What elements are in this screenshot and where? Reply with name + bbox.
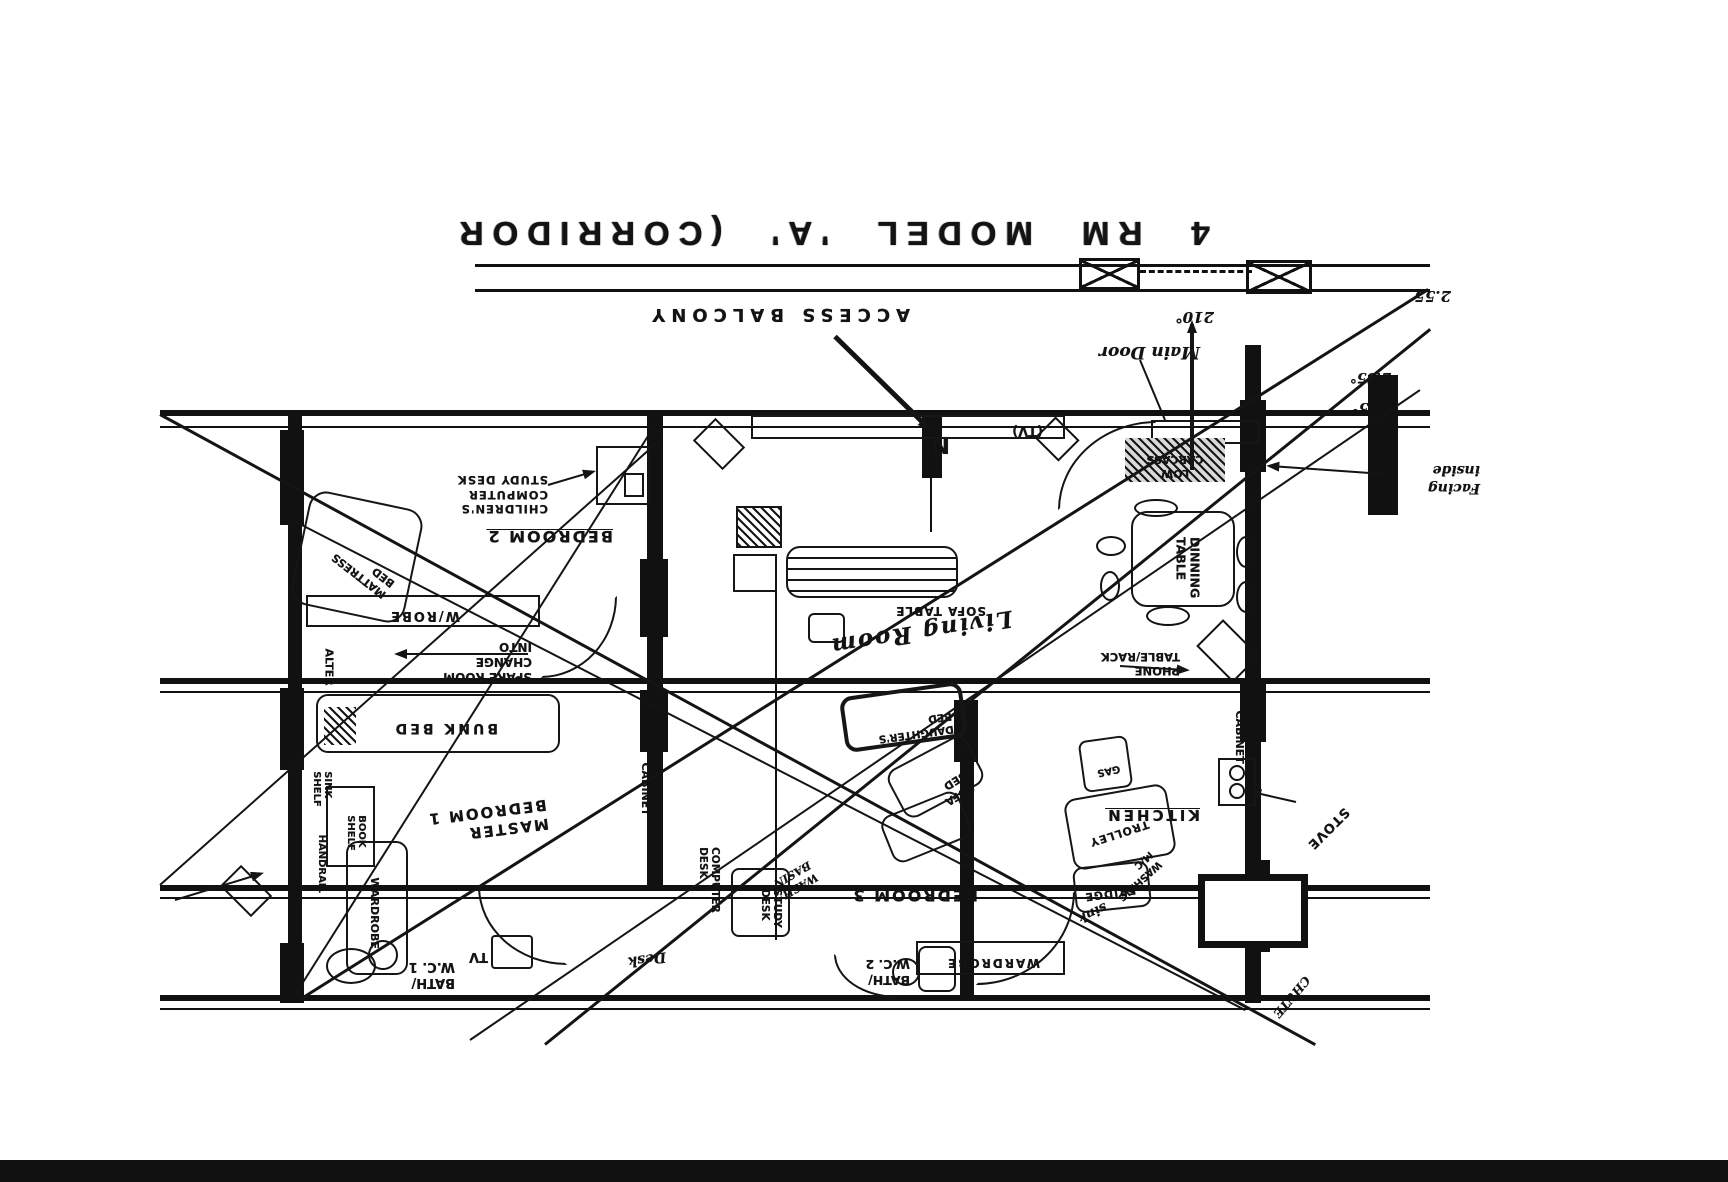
dining-chair: [1146, 606, 1190, 626]
dining-chair: [1236, 581, 1256, 613]
master-bedroom-name: MASTER BEDROOM 1: [426, 795, 549, 847]
bunk-bed-label: BUNK BED: [393, 719, 498, 737]
tv-console-label: (TV): [1012, 422, 1043, 438]
burner: [1229, 765, 1245, 781]
desk-chair: [624, 473, 644, 497]
corridor-hatch-box: [1079, 258, 1140, 290]
spare-room-arrow: [398, 653, 528, 655]
facing-inside-label: Facing inside: [1428, 461, 1480, 496]
spare-room-label: SPARE ROOM CHANGE INTO: [443, 639, 532, 684]
dining-chair: [1134, 499, 1178, 517]
floor-plan-rotated: 4 RM MODEL 'A' (CORRIDOR ACCESS BALCONY …: [0, 0, 1728, 1182]
master-wardrobe-label: WARDROBE: [367, 877, 381, 948]
bath2-fixture: [918, 946, 956, 992]
bedroom3-name: BEDROOM 3: [851, 885, 978, 905]
column: [280, 430, 304, 525]
plan-title: 4 RM MODEL 'A' (CORRIDOR: [110, 213, 1210, 254]
bedroom3-wardrobe-label: WARDROBE: [946, 955, 1040, 970]
column: [280, 943, 304, 1003]
dining-chair: [1236, 536, 1256, 568]
main-door-label: Main Door: [1099, 341, 1200, 362]
refuse-chute: [1198, 874, 1308, 948]
stove-label: STOVE: [1303, 803, 1352, 852]
dining-chair: [1096, 536, 1126, 556]
stool: [808, 613, 845, 643]
master-tv: [491, 935, 533, 969]
alter-label: ALTER: [322, 649, 336, 686]
access-balcony-label: ACCESS BALCONY: [646, 303, 910, 326]
corridor-hatch-box: [1246, 260, 1312, 294]
scanned-floor-plan: 4 RM MODEL 'A' (CORRIDOR ACCESS BALCONY …: [0, 0, 1728, 1182]
children-desk-label: CHILDREN'S COMPUTER STUDY DESK: [457, 473, 548, 516]
wrobe-label: W/ROBE: [389, 607, 460, 623]
phone-rack-label: PHONE TABLE/RACK: [1101, 649, 1180, 678]
handrail-label: HANDRAIL: [315, 835, 328, 893]
cabinet-right-label: CABINET: [1232, 710, 1246, 763]
corridor-dashed-line: [1140, 270, 1252, 273]
sink-shelf-label: SINK SHELF: [311, 771, 333, 807]
cabinet-left-label: CABINET: [638, 762, 652, 815]
children-desk-arrow: [548, 471, 593, 486]
burner: [1229, 783, 1245, 799]
stove-burners: [1218, 758, 1256, 806]
column: [1368, 375, 1398, 515]
master-tv-label: TV: [469, 948, 488, 964]
low-carcass-box: LOW CARCASS: [1125, 438, 1225, 482]
side-table: [736, 506, 782, 548]
bath2-basin: [892, 958, 920, 986]
sofa: [786, 546, 958, 598]
angle-210-arrow: [1190, 324, 1194, 470]
side-table-plain: [733, 554, 777, 592]
bath1-label: BATH/ W.C. 1: [409, 958, 455, 991]
study-desk-label: STUDY DESK: [759, 889, 782, 928]
wall-bottom: [160, 995, 1430, 1001]
dining-table-label: DINNING TABLE: [1173, 537, 1202, 598]
scan-edge-bar: [0, 1160, 1728, 1182]
column: [640, 559, 668, 637]
facing-inside-arrow: [1270, 465, 1384, 475]
door-diamond: [220, 865, 272, 917]
